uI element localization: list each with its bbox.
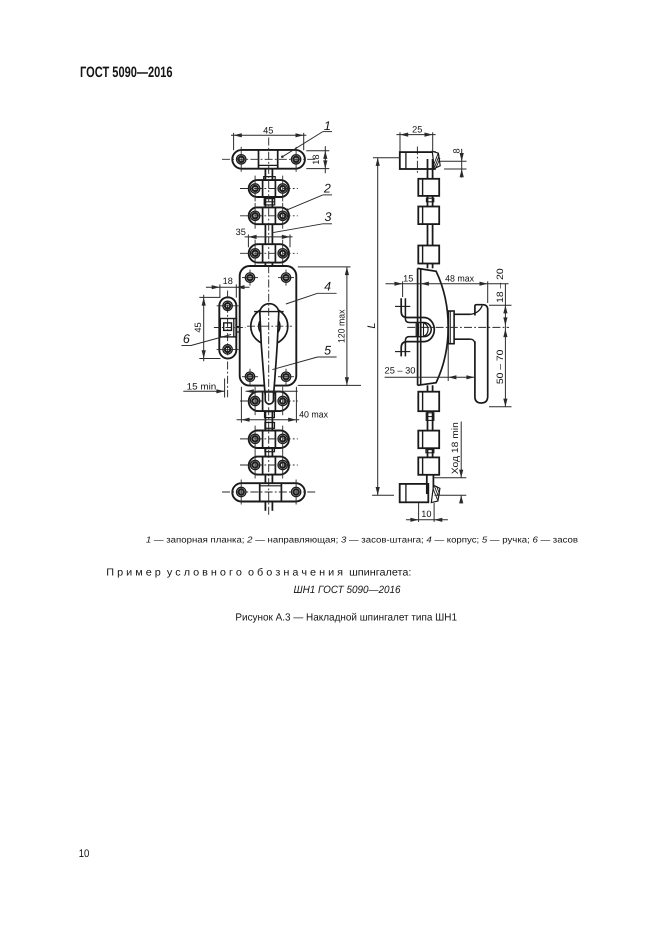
svg-text:15 min: 15 min	[187, 381, 217, 391]
svg-text:П р и м е р у с л о в н о г о: П р и м е р у с л о в н о г о о б о з н …	[106, 568, 411, 579]
svg-text:35: 35	[236, 227, 246, 237]
svg-text:120 max: 120 max	[336, 309, 346, 343]
svg-text:4: 4	[324, 280, 331, 294]
svg-text:15: 15	[403, 274, 413, 284]
svg-text:25 – 30: 25 – 30	[385, 365, 416, 375]
svg-text:10: 10	[79, 848, 90, 860]
svg-text:ГОСТ 5090—2016: ГОСТ 5090—2016	[80, 64, 173, 81]
svg-text:2: 2	[323, 181, 331, 195]
svg-text:18: 18	[223, 276, 233, 286]
svg-text:50 – 70: 50 – 70	[495, 350, 505, 385]
svg-text:45: 45	[193, 322, 203, 332]
svg-text:L: L	[366, 323, 378, 329]
svg-text:18: 18	[311, 154, 321, 164]
svg-text:1 — запорная планка; 2 — напра: 1 — запорная планка; 2 — направляющая; 3…	[146, 534, 579, 544]
svg-text:18 – 20: 18 – 20	[495, 268, 505, 303]
svg-text:Рисунок А.3 — Накладной шпинга: Рисунок А.3 — Накладной шпингалет типа Ш…	[235, 612, 457, 623]
svg-text:6: 6	[183, 332, 190, 346]
svg-text:ШН1 ГОСТ 5090—2016: ШН1 ГОСТ 5090—2016	[294, 584, 401, 596]
svg-text:45: 45	[263, 125, 273, 135]
svg-text:48 max: 48 max	[445, 274, 474, 284]
svg-text:Ход 18 min: Ход 18 min	[450, 422, 460, 474]
svg-text:8: 8	[451, 148, 461, 153]
svg-text:5: 5	[324, 343, 331, 357]
svg-text:40 max: 40 max	[299, 409, 328, 419]
svg-text:3: 3	[325, 210, 332, 224]
svg-text:25: 25	[412, 125, 422, 135]
svg-text:10: 10	[421, 509, 431, 519]
svg-text:1: 1	[324, 119, 331, 133]
